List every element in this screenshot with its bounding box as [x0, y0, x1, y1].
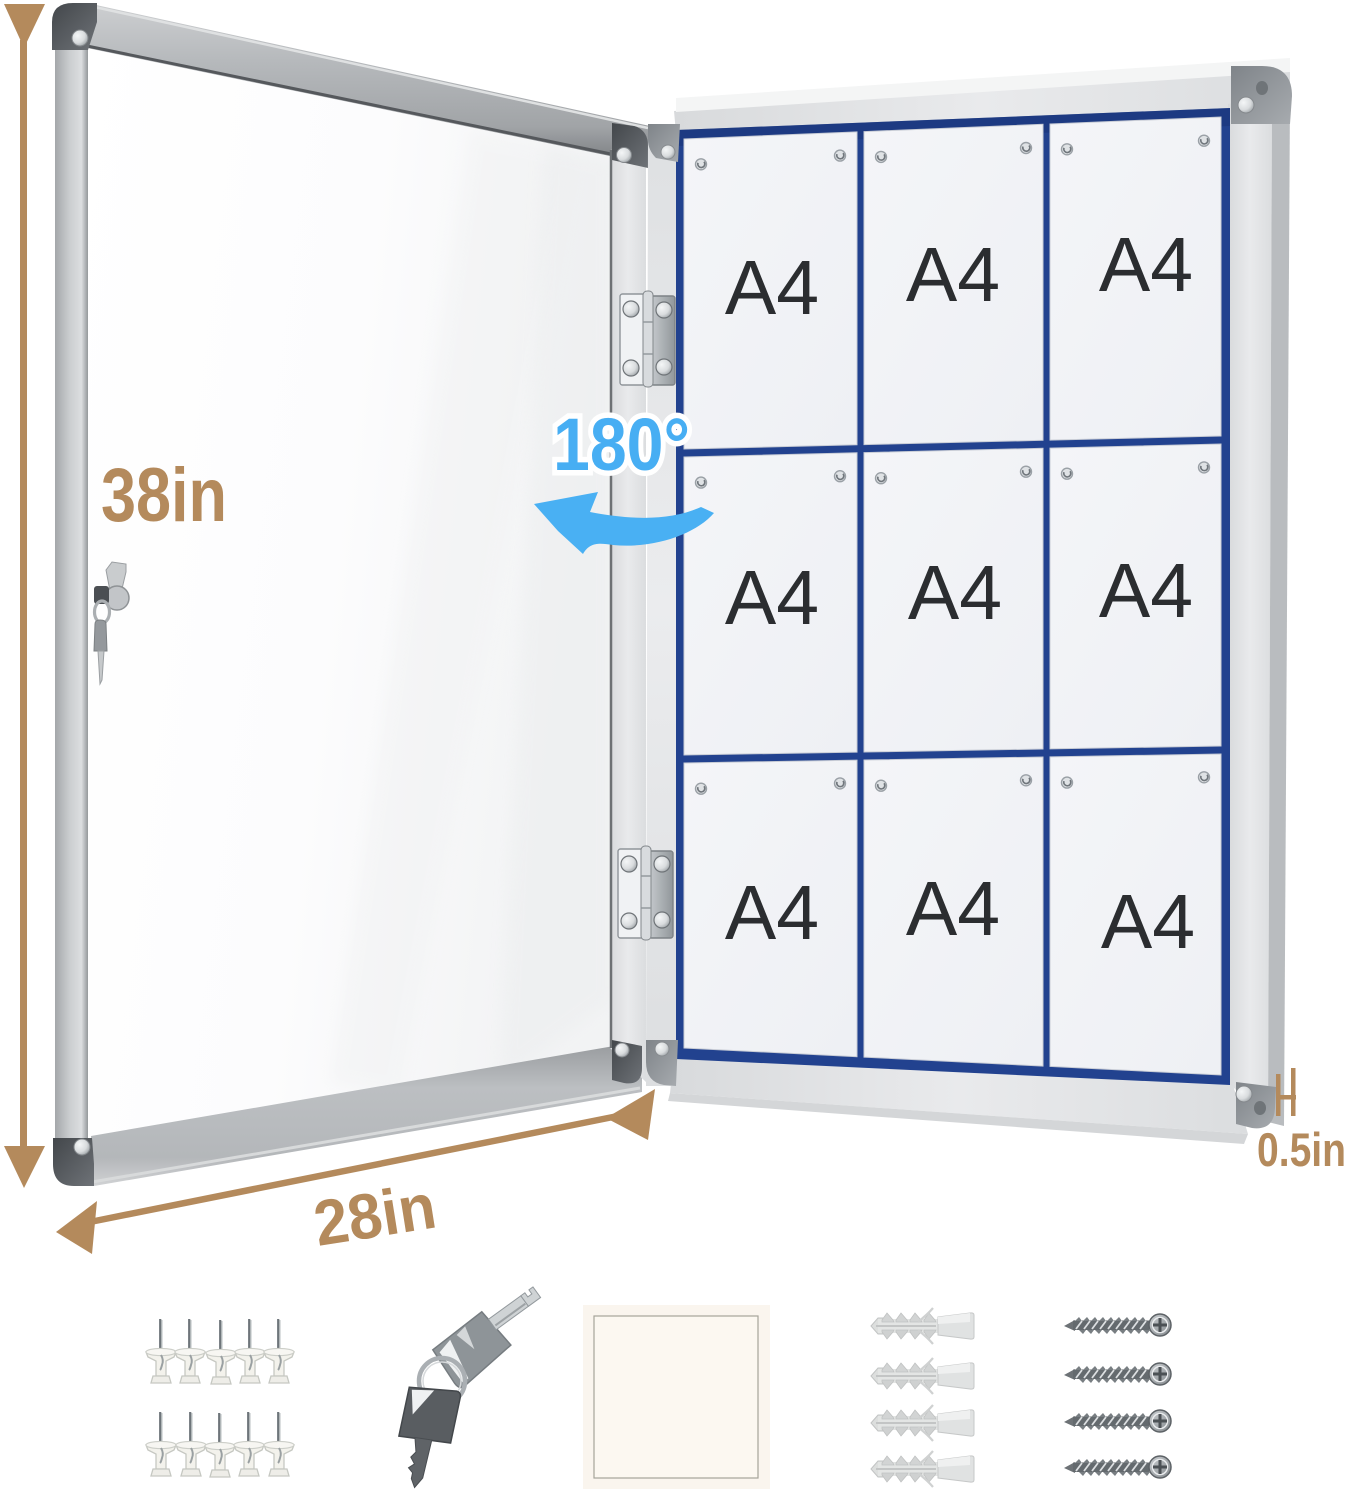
svg-text:A4: A4	[725, 555, 819, 641]
svg-text:A4: A4	[1099, 548, 1193, 634]
svg-text:A4: A4	[906, 232, 1000, 318]
svg-text:A4: A4	[725, 245, 819, 331]
svg-text:A4: A4	[908, 550, 1002, 636]
svg-text:A4: A4	[1099, 222, 1193, 308]
svg-text:A4: A4	[725, 870, 819, 956]
svg-text:A4: A4	[906, 866, 1000, 952]
svg-text:A4: A4	[1101, 879, 1195, 965]
svg-text:180°: 180°	[553, 403, 690, 486]
svg-text:38in: 38in	[101, 453, 227, 538]
svg-text:0.5in: 0.5in	[1257, 1123, 1346, 1176]
